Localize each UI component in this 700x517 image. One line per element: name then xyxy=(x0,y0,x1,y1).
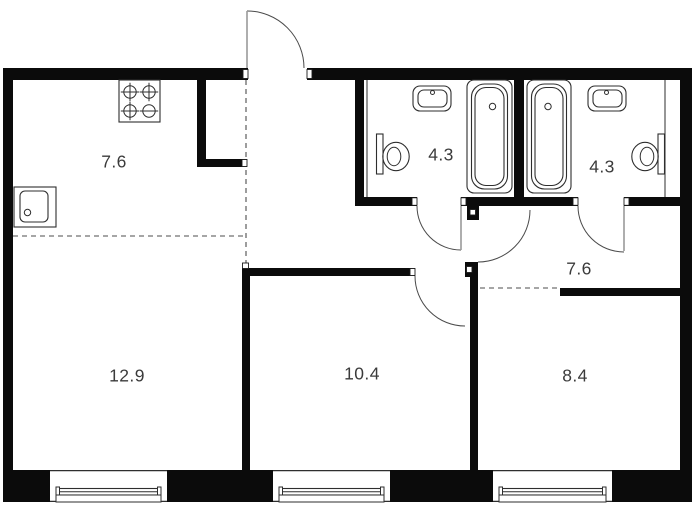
stove-icon xyxy=(119,80,160,122)
kitchen-sink-icon-basin xyxy=(20,191,48,222)
bathtub-right-icon xyxy=(527,80,571,193)
room-label-bathroom-right: 4.3 xyxy=(589,157,615,178)
kitchen-wall-horizontal xyxy=(197,159,247,167)
door-bath-right-arc xyxy=(578,206,624,252)
toilet-right-icon-cistern xyxy=(658,134,665,174)
bath-bottom-wall-b xyxy=(461,197,578,206)
bottom-pier-4 xyxy=(612,470,692,502)
toilet-left-icon-cistern xyxy=(377,134,384,174)
washbasin-right-icon-basin xyxy=(593,90,622,107)
window-living-left-sill xyxy=(56,495,161,502)
jamb-bath2-left xyxy=(573,198,578,206)
room-label-room-right: 8.4 xyxy=(562,366,588,387)
door-bath-left-arc xyxy=(417,206,461,250)
living-room-divider-wall xyxy=(242,268,250,470)
bathtub-left-icon-rim xyxy=(472,84,508,189)
outer-wall-left xyxy=(3,68,13,502)
window-room-right-sill xyxy=(499,495,606,502)
jamb-entrance-left xyxy=(243,70,248,79)
bath-bottom-wall-c xyxy=(624,197,680,206)
tub-divider-wall xyxy=(514,80,524,206)
room-label-hallway: 7.6 xyxy=(566,259,592,280)
window-living-right-sill xyxy=(279,495,384,502)
floor-plan-drawing xyxy=(0,0,700,517)
room-divider-wall xyxy=(470,262,478,470)
jamb-bath1-right xyxy=(461,198,466,206)
washbasin-left-icon-basin xyxy=(418,90,447,107)
kitchen-sink-icon-drain xyxy=(24,209,30,215)
bath-bottom-wall-a xyxy=(355,197,417,206)
jamb-bath1-left xyxy=(412,198,417,206)
room-label-living-room: 12.9 xyxy=(109,366,145,387)
bottom-pier-2 xyxy=(167,470,273,502)
door-corridor-arc xyxy=(478,210,530,262)
jamb-bath2-right xyxy=(624,198,629,206)
bath-left-wall xyxy=(355,80,364,206)
room-middle-top-wall xyxy=(242,268,415,276)
room-label-bathroom-left: 4.3 xyxy=(428,145,454,166)
bathtub-right-icon-drain xyxy=(545,103,551,109)
toilet-left-icon-bowl xyxy=(387,147,401,165)
floor-plan: 7.6 4.3 4.3 7.6 12.9 10.4 8.4 xyxy=(0,0,700,517)
kitchen-wall-vertical xyxy=(197,80,206,167)
outer-wall-top-left xyxy=(3,68,248,80)
bathtub-left-icon xyxy=(467,80,512,193)
bathtub-left-icon-basin xyxy=(475,88,504,186)
outer-wall-right xyxy=(680,68,692,502)
bathtub-left-icon-drain xyxy=(489,103,495,109)
bottom-pier-3 xyxy=(390,470,493,502)
hinge-inset-room xyxy=(467,267,473,273)
jamb-divider-top xyxy=(243,263,249,269)
bottom-pier-1 xyxy=(3,470,50,502)
hinge-inset-corridor xyxy=(470,210,476,216)
jamb-entrance-right xyxy=(307,70,312,79)
washbasin-right-icon-tap xyxy=(605,91,609,95)
door-room-middle-arc xyxy=(415,276,465,326)
jamb-room-middle xyxy=(410,269,415,276)
washbasin-left-icon-tap xyxy=(431,91,435,95)
room-label-kitchen: 7.6 xyxy=(101,152,127,173)
outer-wall-top-right xyxy=(307,68,692,80)
bathtub-right-icon-basin xyxy=(535,88,563,186)
door-entrance-arc xyxy=(247,11,304,68)
bathtub-right-icon-rim xyxy=(532,84,567,189)
toilet-right-icon-bowl xyxy=(640,147,654,165)
room-right-top-wall xyxy=(560,288,680,296)
room-label-room-middle: 10.4 xyxy=(344,364,380,385)
jamb-kitchen-wall xyxy=(242,160,247,167)
